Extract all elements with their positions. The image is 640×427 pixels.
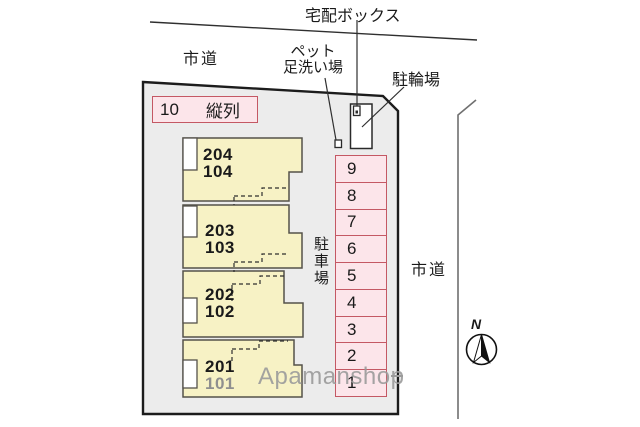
room-number-102: 102	[205, 303, 235, 320]
tandem-parking-badge: 10 縦列	[152, 96, 258, 123]
tandem-parking-count: 10	[153, 100, 179, 120]
parking-space-4: 4	[336, 290, 386, 317]
parking-space-column: 9 8 7 6 5 4 3 2 1	[335, 155, 387, 397]
parking-space-9: 9	[336, 156, 386, 183]
building-unit-204	[183, 138, 302, 201]
balcony-notch-203	[183, 206, 197, 237]
room-label-204-104: 204 104	[203, 146, 233, 180]
room-number-202: 202	[205, 286, 235, 303]
room-number-204: 204	[203, 146, 233, 163]
tandem-parking-label: 縦列	[206, 97, 240, 122]
parking-lot-label: 駐車場	[310, 236, 331, 287]
room-number-103: 103	[205, 239, 235, 256]
balcony-notch-201	[183, 360, 197, 388]
parking-space-5: 5	[336, 263, 386, 290]
pet-wash-label-line1: ペット	[290, 43, 335, 60]
pet-wash-label-line2: 足洗い場	[283, 59, 343, 76]
parking-space-6: 6	[336, 236, 386, 263]
balcony-notch-202	[183, 298, 197, 323]
parking-space-7: 7	[336, 210, 386, 237]
north-arrow	[467, 335, 497, 365]
city-road-top-label: 市道	[183, 45, 219, 69]
room-number-101: 101	[205, 375, 235, 392]
building-unit-203	[183, 205, 302, 268]
parking-space-8: 8	[336, 183, 386, 210]
watermark: Apamanshop	[258, 363, 404, 391]
parking-space-3: 3	[336, 317, 386, 344]
room-number-203: 203	[205, 222, 235, 239]
delivery-box-dot	[356, 111, 359, 114]
room-number-201: 201	[205, 358, 235, 375]
road-line-right	[458, 100, 476, 419]
pet-wash-label: ペット 足洗い場	[281, 44, 345, 76]
room-label-202-102: 202 102	[205, 286, 235, 320]
city-road-right-label: 市道	[411, 256, 447, 280]
bicycle-parking-label: 駐輪場	[392, 66, 440, 90]
north-label: N	[471, 316, 481, 332]
pet-wash-marker	[335, 140, 342, 148]
balcony-notch-204	[183, 138, 197, 170]
room-label-201-101: 201 101	[205, 358, 235, 392]
room-label-203-103: 203 103	[205, 222, 235, 256]
delivery-box-label: 宅配ボックス	[305, 2, 401, 26]
site-plan: 宅配ボックス 市道 ペット 足洗い場 駐輪場 10 縦列 204 104 203…	[0, 0, 640, 427]
room-number-104: 104	[203, 163, 233, 180]
